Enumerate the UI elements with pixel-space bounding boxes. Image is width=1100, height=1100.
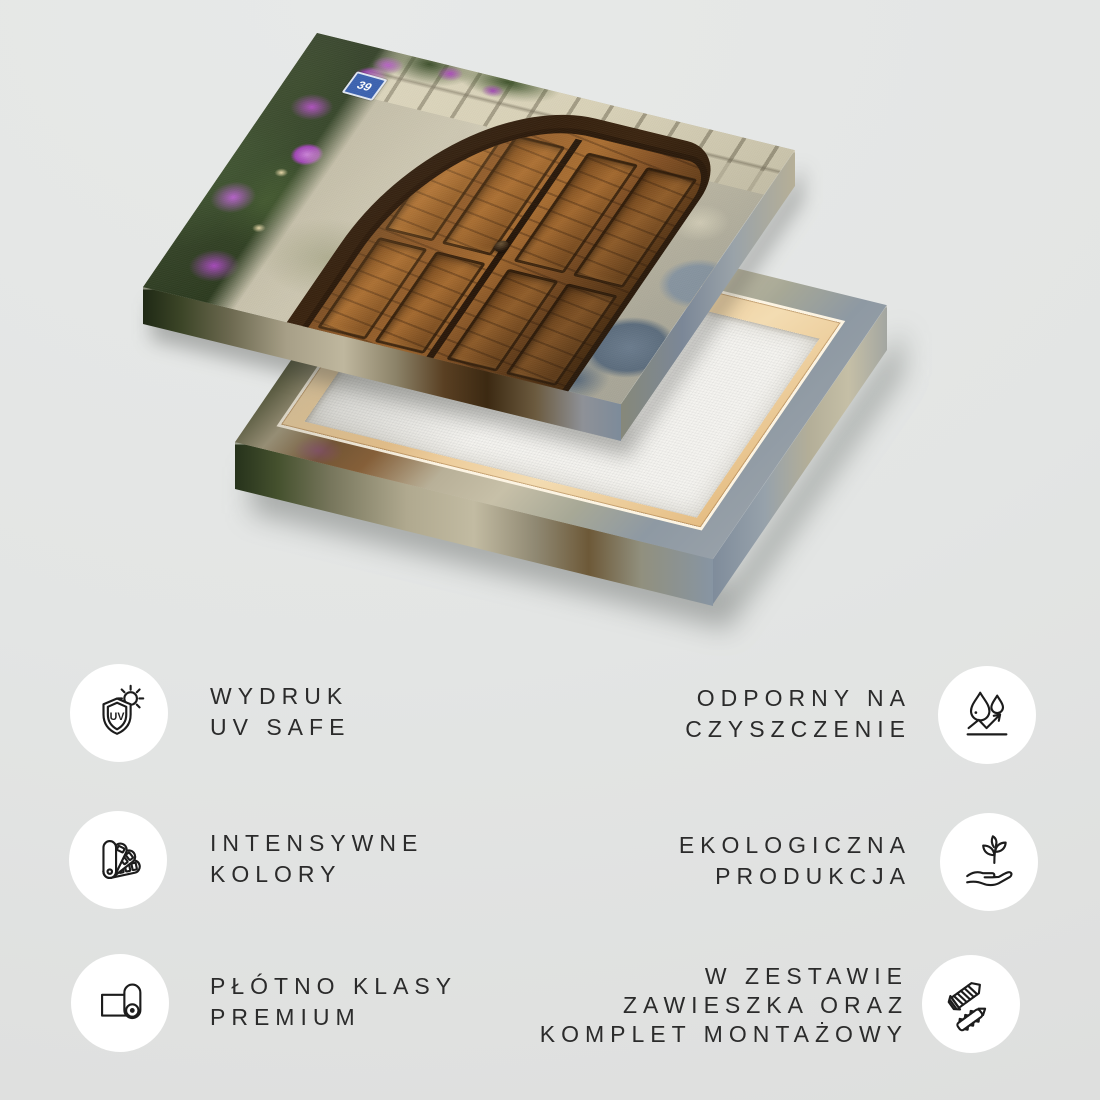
feature-label-uv-safe: WYDRUK UV SAFE [210, 681, 350, 743]
feature-label-canvas: PŁÓTNO KLASY PREMIUM [210, 971, 457, 1033]
feature-canvas-badge [71, 954, 169, 1052]
feature-label-cleaning: ODPORNY NA CZYSZCZENIE [685, 683, 911, 745]
feature-label-mounting: W ZESTAWIE ZAWIESZKA ORAZ KOMPLET MONTAŻ… [540, 962, 908, 1049]
hand-plant-icon [958, 831, 1020, 893]
water-drops-bounce-icon [956, 684, 1018, 746]
feature-label-colors: INTENSYWNE KOLORY [210, 828, 423, 890]
product-infographic: 39 UV WYDRUK UV SAFE ODPORNY NA CZYSZCZE… [0, 0, 1100, 1100]
uv-shield-sun-icon: UV [88, 682, 150, 744]
feature-cleaning-badge [938, 666, 1036, 764]
canvas-roll-icon [89, 972, 151, 1034]
screw-anchor-icon [940, 973, 1002, 1035]
feature-colors-badge [69, 811, 167, 909]
feature-uv-safe-badge: UV [70, 664, 168, 762]
feature-label-eco: EKOLOGICZNA PRODUKCJA [679, 830, 911, 892]
feature-eco-badge [940, 813, 1038, 911]
canvas-3d-preview: 39 [0, 0, 1100, 680]
color-swatches-icon [87, 829, 149, 891]
feature-mounting-badge [922, 955, 1020, 1053]
svg-text:UV: UV [110, 711, 126, 723]
